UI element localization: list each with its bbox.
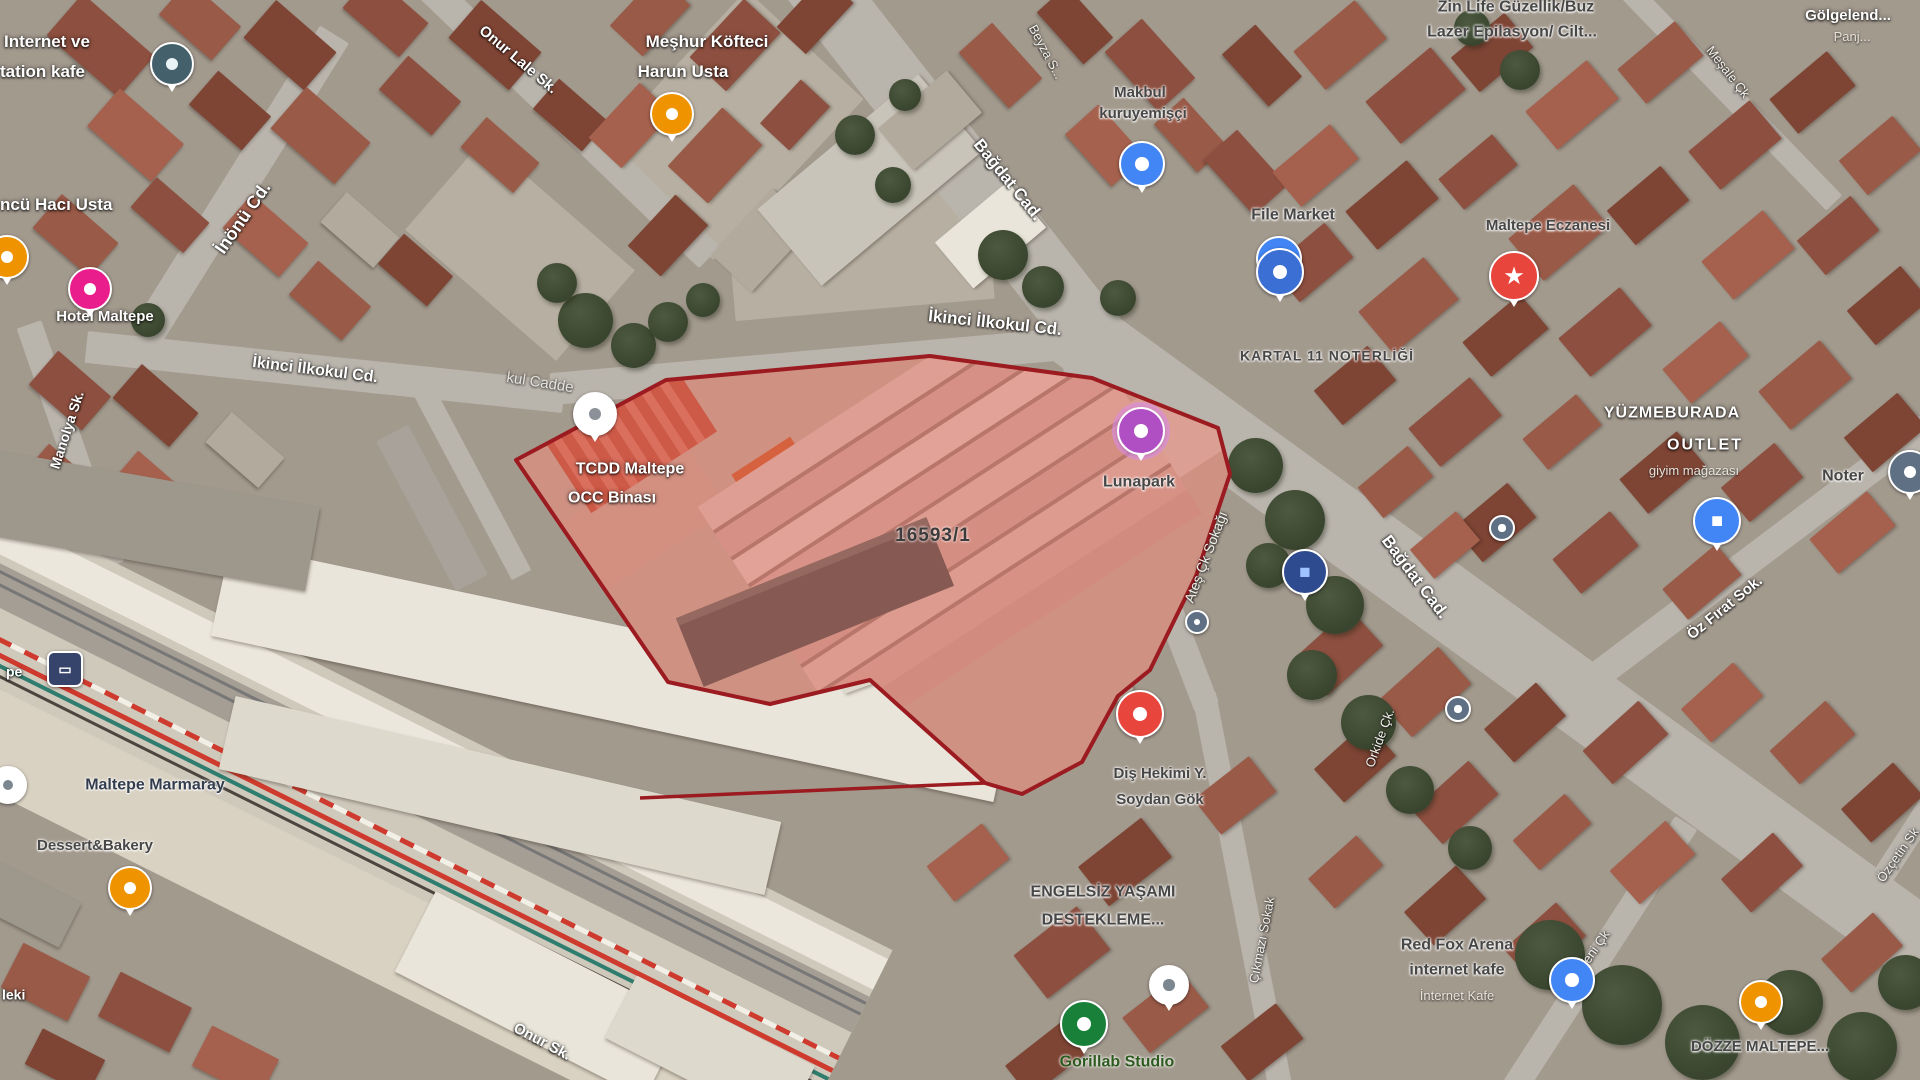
pin-gorillab[interactable] [1060,1000,1108,1048]
map-label-dis-hekimi-2[interactable]: Soydan Gök [1116,792,1204,808]
map-label-lunapark[interactable]: Lunapark [1103,475,1175,492]
pin-generic-white-dot [1163,979,1175,991]
map-label-edge-fragment-pe[interactable]: pe [6,665,22,680]
pin-dozze-dot [1755,996,1768,1009]
map-label-edge-fragment-leki[interactable]: leki [2,988,25,1003]
map-label-zinlife-2[interactable]: Lazer Epilasyon/ Cilt... [1427,25,1597,42]
map-label-internet-kafe-1[interactable]: Internet ve [4,33,90,51]
pin-gorillab-dot [1077,1017,1091,1031]
map-label-engelsiz-2[interactable]: DESTEKLEME... [1042,913,1165,930]
pin-hotel-maltepe-dot [84,283,97,296]
map-label-makbul-2[interactable]: kuruyemişçi [1099,106,1187,122]
pin-dis-hekimi-dot [1133,707,1147,721]
pin-generic-white[interactable] [1149,965,1189,1005]
pin-stop-2-dot [1498,524,1505,531]
pin-bank[interactable]: ■ [1282,549,1328,595]
pin-tcdd[interactable] [573,392,617,436]
pin-stop-3[interactable] [1445,696,1471,722]
pin-stop-3-dot [1454,705,1461,712]
pin-kuruyemisci[interactable] [1119,141,1165,187]
satellite-map[interactable]: Internet vetation kafencü Hacı UstaHotel… [0,0,1920,1080]
pin-redfox[interactable] [1549,957,1595,1003]
pin-outlet-glyph: ■ [1711,511,1723,531]
pin-eczane[interactable]: ★ [1489,251,1539,301]
map-label-golgelend[interactable]: Gölgelend... [1805,8,1891,24]
map-label-red-fox-1[interactable]: Red Fox Arena [1401,938,1513,955]
map-label-gorillab-studio[interactable]: Gorillab Studio [1060,1055,1175,1072]
pin-lunapark[interactable] [1117,407,1165,455]
pin-stop-1-dot [1194,619,1200,625]
parcel-boundary-extension [640,783,985,798]
map-label-panj[interactable]: Panj... [1834,30,1871,44]
map-label-maltepe-eczanesi[interactable]: Maltepe Eczanesi [1486,218,1610,234]
map-label-red-fox-3[interactable]: İnternet Kafe [1420,989,1494,1003]
map-label-red-fox-2[interactable]: internet kafe [1409,963,1504,980]
map-label-hotel-maltepe[interactable]: Hotel Maltepe [56,309,154,325]
train-station-icon-glyph: ▭ [58,662,71,676]
pin-edge-white-dot [3,780,14,791]
map-label-kofteci-2[interactable]: Harun Usta [638,63,729,81]
map-label-file-market[interactable]: File Market [1251,208,1335,225]
map-label-yuzmeburada-1[interactable]: YÜZMEBURADA [1604,406,1740,423]
map-label-dessert-bakery[interactable]: Dessert&Bakery [37,838,153,854]
pin-internet-kafe[interactable] [150,42,194,86]
map-label-tcdd-2[interactable]: OCC Binası [568,491,656,508]
map-label-tcdd-1[interactable]: TCDD Maltepe [576,462,684,479]
pin-dozze[interactable] [1739,980,1783,1024]
map-label-maltepe-marmaray[interactable]: Maltepe Marmaray [85,778,225,795]
map-label-zinlife-1[interactable]: Zin Life Güzellik/Buz [1438,0,1594,16]
pin-kuruyemisci-dot [1135,157,1148,170]
map-label-makbul-1[interactable]: Makbul [1114,85,1166,101]
pin-eczane-glyph: ★ [1505,266,1524,287]
map-label-noter[interactable]: Noter [1822,469,1864,486]
map-label-kartal-11-noterligi[interactable]: KARTAL 11 NOTERLİĞİ [1240,349,1414,364]
pin-bank-glyph: ■ [1299,563,1310,582]
pin-dessert[interactable] [108,866,152,910]
pin-tcdd-dot [589,408,602,421]
map-label-dozze-maltepe[interactable]: DÖZZE MALTEPE... [1691,1039,1829,1055]
pin-noter-dot [1904,466,1917,479]
map-label-yuzmeburada-3[interactable]: giyim mağazası [1649,464,1739,478]
pin-dessert-dot [124,882,137,895]
map-label-yuzmeburada-2[interactable]: OUTLET [1667,438,1743,455]
pin-stop-2[interactable] [1489,515,1515,541]
pin-stop-1[interactable] [1185,610,1209,634]
map-label-parcel-number[interactable]: 16593/1 [895,526,971,546]
map-label-haci-usta[interactable]: ncü Hacı Usta [0,196,112,214]
pin-left-restaurant-dot [1,251,14,264]
pin-outlet[interactable]: ■ [1693,497,1741,545]
train-station-icon[interactable]: ▭ [47,651,83,687]
map-label-dis-hekimi-1[interactable]: Diş Hekimi Y. [1113,766,1206,782]
pin-lunapark-dot [1134,424,1148,438]
pin-kofteci-dot [666,108,679,121]
pin-dis-hekimi[interactable] [1116,690,1164,738]
map-label-internet-kafe-2[interactable]: tation kafe [0,63,85,81]
map-label-kofteci-1[interactable]: Meşhur Köfteci [646,33,769,51]
pin-club[interactable] [1256,248,1304,296]
pin-internet-kafe-dot [166,58,179,71]
pin-redfox-dot [1565,973,1578,986]
pin-hotel-maltepe[interactable] [68,267,112,311]
pin-club-dot [1273,265,1287,279]
pin-kofteci[interactable] [650,92,694,136]
map-label-engelsiz-1[interactable]: ENGELSİZ YAŞAMI [1031,885,1176,902]
